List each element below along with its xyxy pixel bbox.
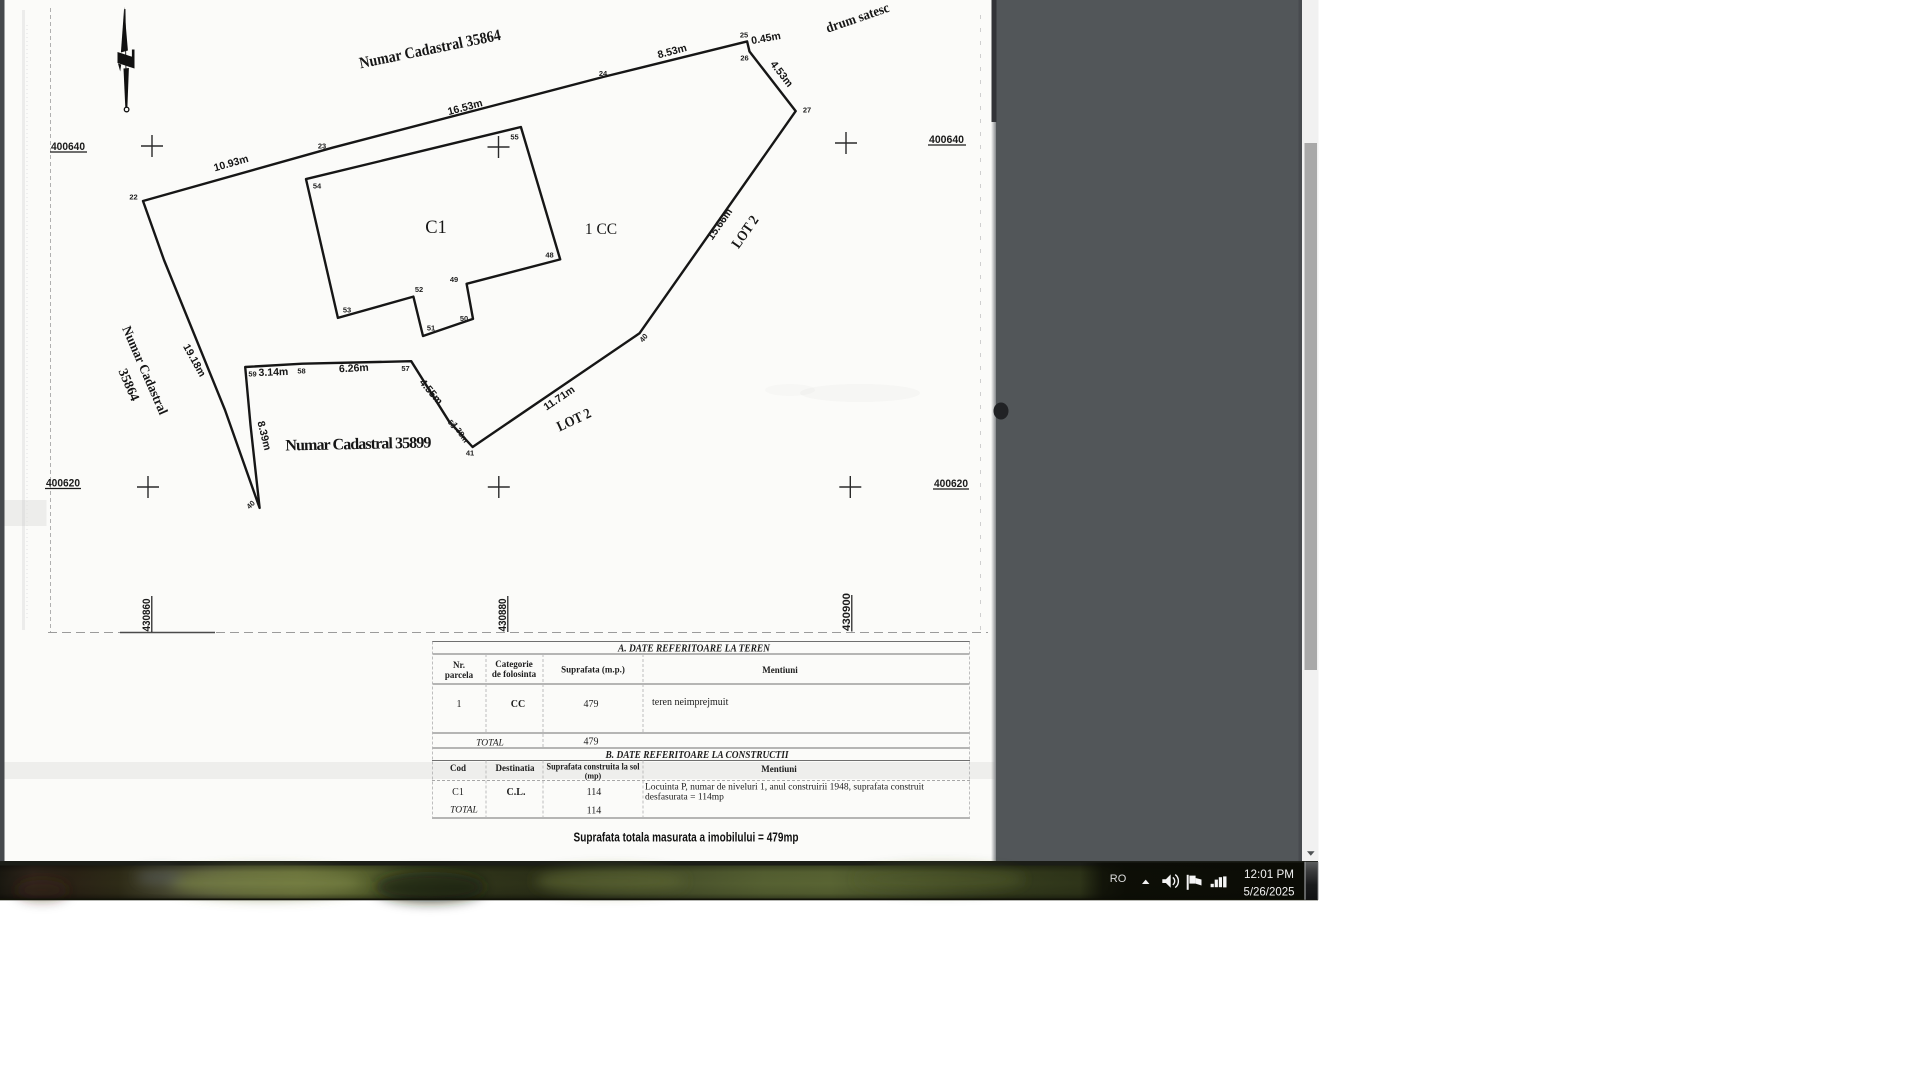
svg-text:1: 1 bbox=[457, 699, 462, 710]
svg-text:TOTAL: TOTAL bbox=[476, 739, 504, 749]
svg-text:A. DATE REFERITOARE LA TEREN: A. DATE REFERITOARE LA TEREN bbox=[617, 644, 770, 655]
svg-text:55: 55 bbox=[510, 133, 518, 142]
svg-text:479: 479 bbox=[584, 737, 599, 748]
svg-text:22: 22 bbox=[129, 193, 137, 202]
svg-text:TOTAL: TOTAL bbox=[450, 806, 478, 816]
svg-text:de folosinta: de folosinta bbox=[492, 669, 537, 679]
svg-text:400640: 400640 bbox=[929, 134, 964, 146]
svg-text:400620: 400620 bbox=[46, 478, 80, 490]
svg-text:48: 48 bbox=[545, 251, 553, 260]
svg-text:desfasurata = 114mp: desfasurata = 114mp bbox=[645, 792, 724, 803]
svg-text:6.26m: 6.26m bbox=[339, 362, 369, 376]
svg-text:41: 41 bbox=[466, 449, 474, 458]
svg-text:Suprafata construita la sol: Suprafata construita la sol bbox=[547, 762, 640, 772]
svg-text:parcela: parcela bbox=[445, 670, 474, 680]
svg-text:RO: RO bbox=[1110, 873, 1127, 885]
svg-text:114: 114 bbox=[587, 787, 602, 798]
svg-text:Categorie: Categorie bbox=[495, 659, 532, 669]
svg-text:114: 114 bbox=[587, 806, 602, 817]
svg-text:24: 24 bbox=[599, 69, 608, 78]
svg-text:400640: 400640 bbox=[51, 141, 85, 153]
svg-text:23: 23 bbox=[318, 142, 326, 151]
svg-text:1 CC: 1 CC bbox=[585, 221, 617, 238]
svg-text:54: 54 bbox=[313, 182, 322, 191]
svg-text:53: 53 bbox=[343, 306, 351, 315]
svg-text:Suprafata totala masurata a im: Suprafata totala masurata a imobilului =… bbox=[574, 831, 799, 845]
svg-text:25: 25 bbox=[740, 31, 748, 40]
svg-text:C.L.: C.L. bbox=[507, 787, 526, 798]
svg-text:Nr.: Nr. bbox=[453, 660, 465, 670]
svg-text:Mentiuni: Mentiuni bbox=[761, 764, 797, 774]
svg-text:Numar Cadastral 35899: Numar Cadastral 35899 bbox=[285, 434, 431, 454]
svg-text:CC: CC bbox=[511, 699, 525, 710]
svg-text:49: 49 bbox=[450, 275, 458, 284]
svg-text:B. DATE REFERITOARE LA CONSTRU: B. DATE REFERITOARE LA CONSTRUCTII bbox=[605, 749, 789, 761]
svg-text:Locuinta P, numar de niveluri: Locuinta P, numar de niveluri 1, anul co… bbox=[645, 782, 924, 793]
svg-text:59: 59 bbox=[248, 370, 256, 379]
svg-text:C1: C1 bbox=[452, 787, 464, 798]
svg-text:Cod: Cod bbox=[450, 763, 466, 773]
svg-text:C1: C1 bbox=[425, 218, 447, 238]
svg-text:teren neimprejmuit: teren neimprejmuit bbox=[652, 697, 729, 708]
svg-text:(mp): (mp) bbox=[585, 772, 602, 781]
svg-text:27: 27 bbox=[803, 106, 811, 115]
svg-text:400620: 400620 bbox=[934, 478, 968, 490]
svg-text:26: 26 bbox=[740, 54, 748, 63]
svg-text:50: 50 bbox=[460, 314, 468, 323]
svg-text:Suprafata (m.p.): Suprafata (m.p.) bbox=[561, 665, 625, 675]
svg-text:479: 479 bbox=[584, 699, 599, 710]
svg-text:Mentiuni: Mentiuni bbox=[762, 665, 798, 675]
svg-text:3.14m: 3.14m bbox=[258, 366, 288, 379]
svg-text:58: 58 bbox=[297, 367, 305, 376]
svg-text:Destinatia: Destinatia bbox=[496, 763, 535, 773]
svg-text:12:01 PM: 12:01 PM bbox=[1244, 867, 1294, 881]
svg-text:5/26/2025: 5/26/2025 bbox=[1244, 884, 1295, 898]
svg-text:52: 52 bbox=[415, 285, 423, 294]
svg-text:51: 51 bbox=[427, 324, 435, 333]
svg-text:57: 57 bbox=[401, 364, 409, 373]
